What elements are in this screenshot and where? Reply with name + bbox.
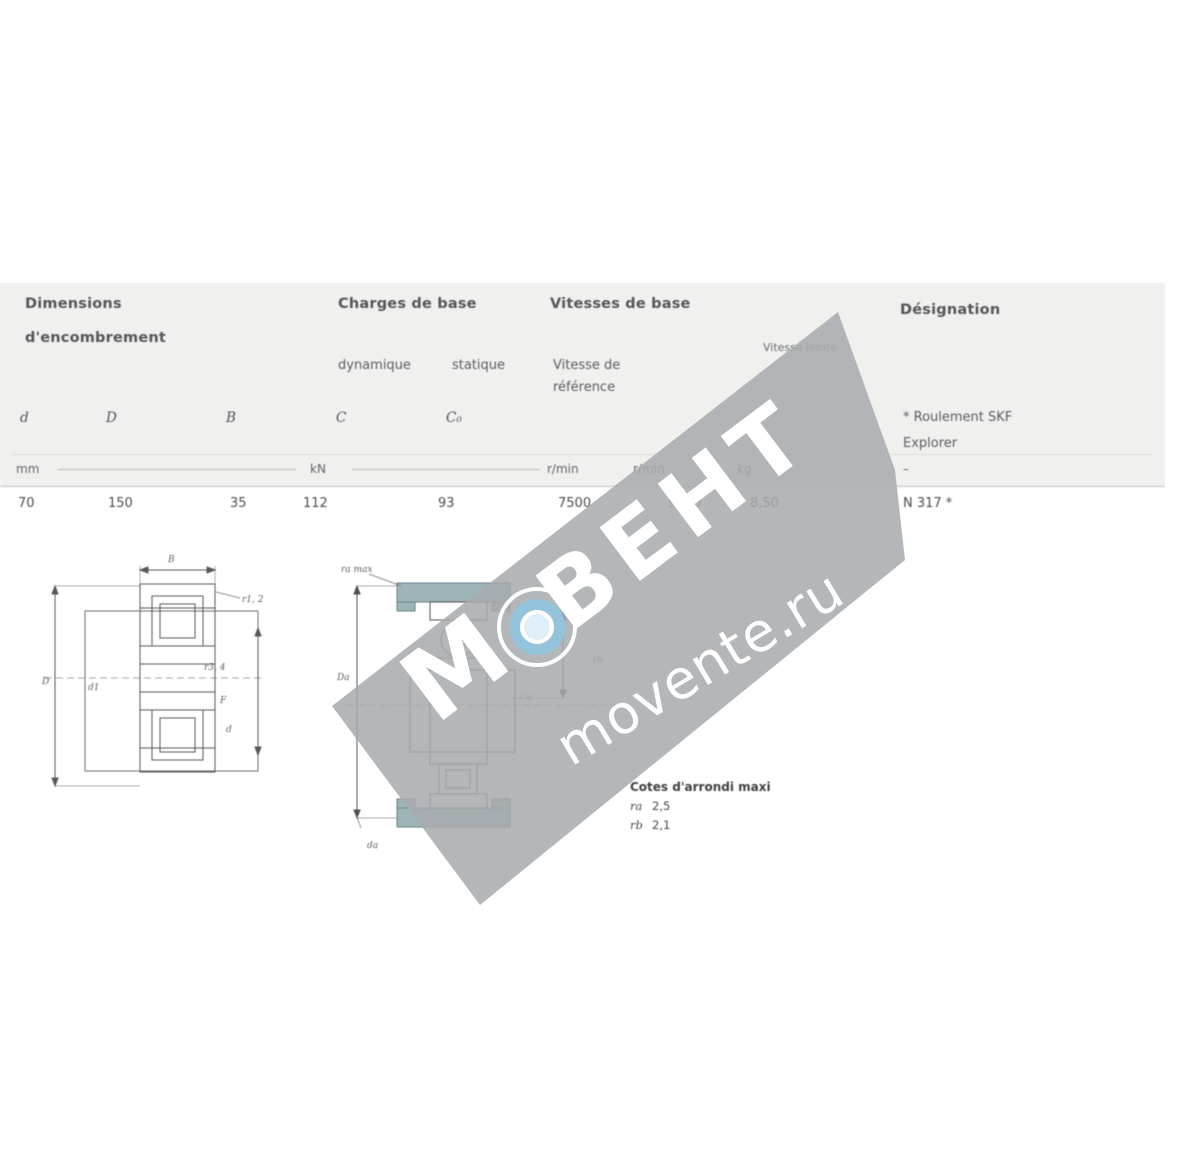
cell-C: 112 <box>303 496 328 511</box>
cell-B: 35 <box>230 496 247 511</box>
fillet-notes: Cotes d'arrondi maxi ra 2,5 rb 2,1 <box>630 780 771 832</box>
col-header-dimensions-line2: d'encombrement <box>25 330 166 346</box>
symbol-D: D <box>106 410 117 426</box>
col-header-designation: Désignation <box>900 302 1000 318</box>
label-Da: Da <box>336 673 350 683</box>
label-B: B <box>167 555 175 565</box>
symbol-d: d <box>20 410 29 426</box>
label-ra-max: ra max <box>341 565 373 575</box>
unit-mm: mm <box>16 462 39 476</box>
units-top-rule <box>12 454 1152 455</box>
cell-D: 150 <box>108 496 133 511</box>
cell-C0: 93 <box>438 496 455 511</box>
label-F: F <box>219 696 227 706</box>
unit-rule-2 <box>352 469 540 470</box>
subheader-vref-line1: Vitesse de <box>553 358 620 373</box>
section-geometry <box>45 566 265 786</box>
symbol-C0: C₀ <box>446 410 462 426</box>
symbol-C: C <box>336 410 346 426</box>
symbol-B: B <box>226 410 236 426</box>
fillet-note-rb: rb 2,1 <box>630 818 771 832</box>
unit-rule-1 <box>58 469 296 470</box>
label-d1: d1 <box>88 683 100 693</box>
label-D: D <box>41 677 49 687</box>
cell-designation: N 317 * <box>903 496 952 511</box>
unit-kn: kN <box>310 462 326 476</box>
label-da: da <box>367 841 378 851</box>
label-r34: r3, 4 <box>204 663 226 673</box>
subheader-dynamique: dynamique <box>338 358 411 373</box>
fillet-notes-heading: Cotes d'arrondi maxi <box>630 780 771 794</box>
cell-d: 70 <box>18 496 35 511</box>
col-header-charges: Charges de base <box>338 296 477 312</box>
label-d: d <box>226 725 232 735</box>
explorer-note-line2: Explorer <box>903 436 957 451</box>
unit-dash: – <box>903 462 909 476</box>
explorer-note-line1: * Roulement SKF <box>903 410 1012 425</box>
header-separator-rule <box>0 486 1165 487</box>
label-r12: r1, 2 <box>242 595 264 605</box>
fillet-ra-value: 2,5 <box>652 799 670 813</box>
fillet-note-ra: ra 2,5 <box>630 799 771 813</box>
fillet-rb-value: 2,1 <box>652 818 670 832</box>
col-header-dimensions-line1: Dimensions <box>25 296 122 312</box>
subheader-statique: statique <box>452 358 505 373</box>
subheader-vref-line2: référence <box>553 380 615 395</box>
fillet-rb-symbol: rb <box>630 818 652 832</box>
unit-rmin-1: r/min <box>547 462 579 476</box>
bearing-section-drawing: B r1, 2 D d1 F d r3, 4 <box>40 546 270 816</box>
col-header-vitesses: Vitesses de base <box>550 296 691 312</box>
fillet-ra-symbol: ra <box>630 799 652 813</box>
watermark-logo-center-dot <box>524 614 550 640</box>
